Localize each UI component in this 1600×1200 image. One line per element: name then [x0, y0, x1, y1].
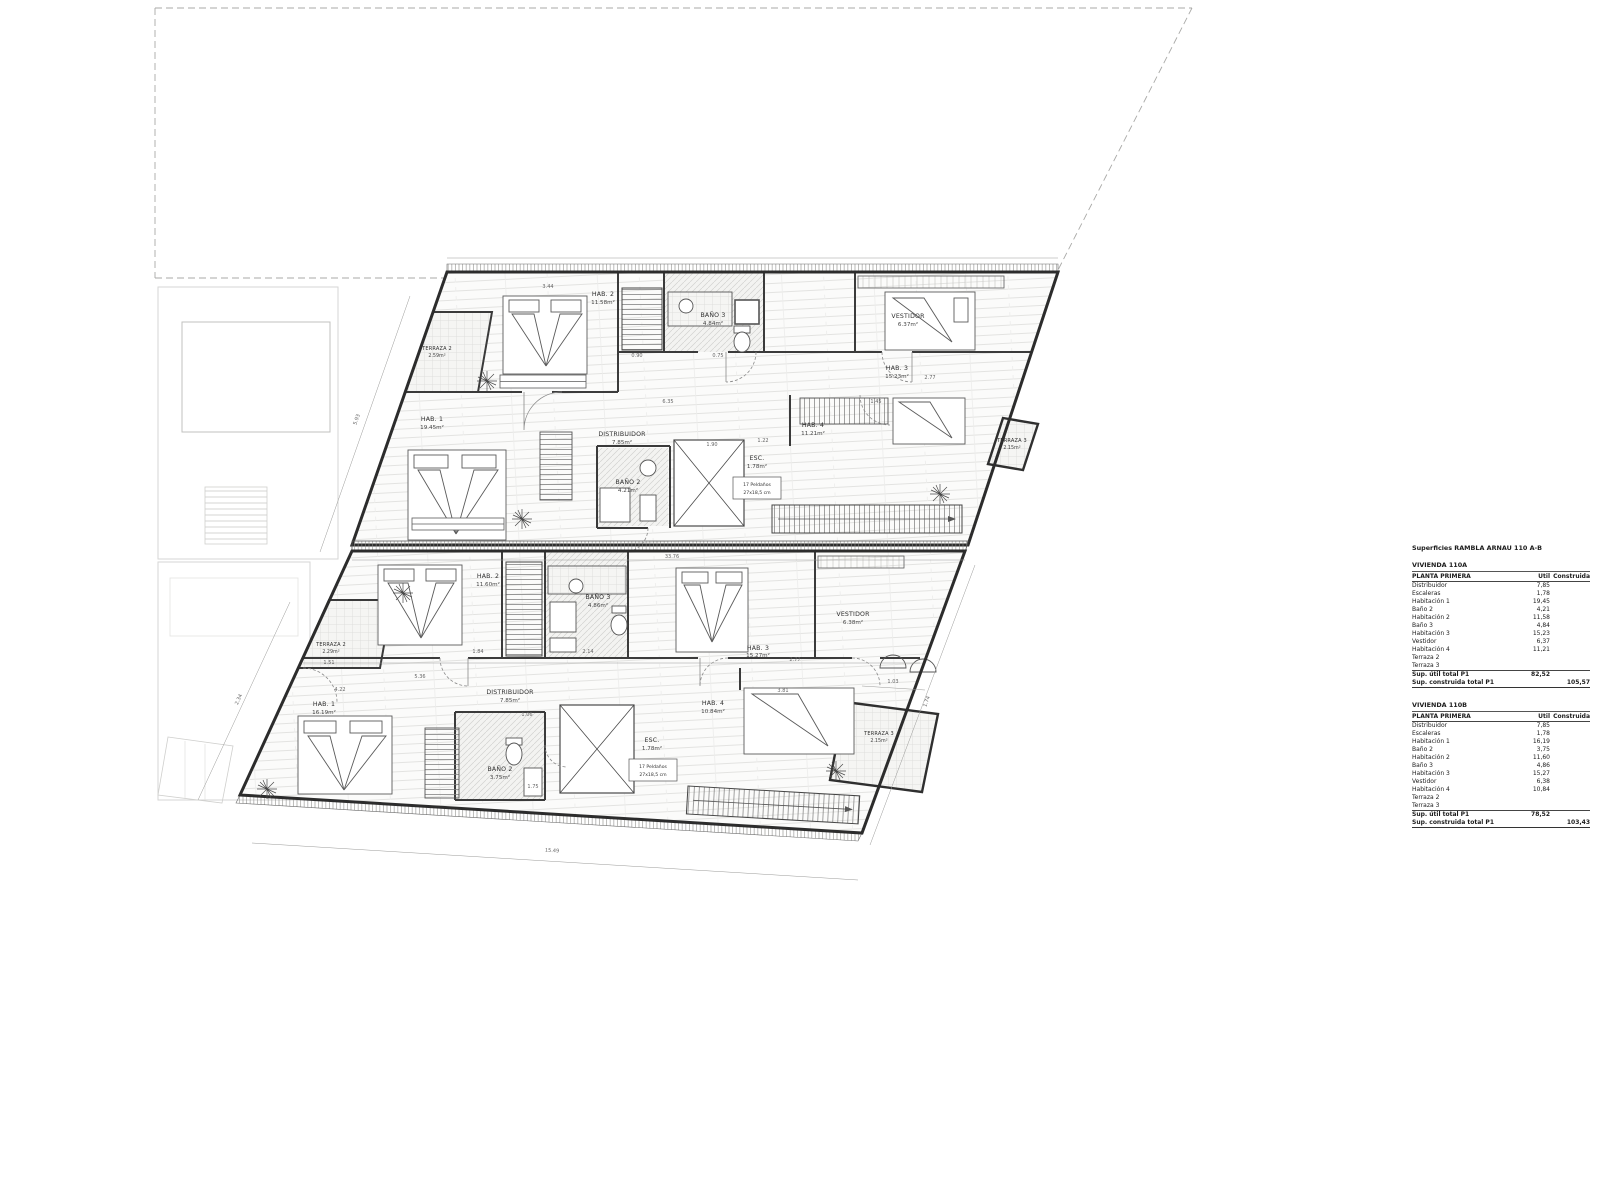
table-row: Vestidor 6,38 — [1412, 778, 1590, 786]
table-row: Vestidor 6,37 — [1412, 638, 1590, 646]
total-label: Sup. útil total P1 — [1412, 671, 1508, 680]
stair-note-line2: 27x18,5 cm — [743, 490, 771, 496]
table-row: Habitación 2 11,58 — [1412, 614, 1590, 622]
row-util: 7,85 — [1508, 722, 1550, 731]
room-area: 4.86m² — [588, 602, 608, 609]
unit-b: 17 Peldaños 27x18,5 cm TERRAZA 2 2.29m² … — [236, 551, 965, 841]
row-construida — [1550, 722, 1590, 731]
dim: 4.22 — [334, 687, 345, 693]
room-area: 16.19m² — [312, 709, 336, 716]
row-util — [1508, 794, 1550, 802]
room-label: BAÑO 2 — [615, 477, 640, 486]
unit-110a-table: VIVIENDA 110A PLANTA PRIMERA Útil Constr… — [1412, 561, 1590, 688]
row-util: 6,38 — [1508, 778, 1550, 786]
unit-110b-table: VIVIENDA 110B PLANTA PRIMERA Útil Constr… — [1412, 701, 1590, 828]
area-summary-table: Superficies RAMBLA ARNAU 110 A-B VIVIEND… — [1412, 544, 1590, 841]
table-row: Baño 2 4,21 — [1412, 606, 1590, 614]
table-row: Terraza 3 — [1412, 662, 1590, 671]
room-area: 1.78m² — [747, 463, 767, 470]
total-construida-row: Sup. construida total P1 103,43 — [1412, 819, 1590, 828]
dim: 5.36 — [414, 674, 425, 680]
room-area: 19.45m² — [420, 424, 444, 431]
room-area: 7.85m² — [612, 439, 632, 446]
dim: 1.45 — [870, 399, 881, 405]
room-label: HAB. 3 — [886, 365, 908, 372]
table-row: Habitación 1 16,19 — [1412, 738, 1590, 746]
total-label: Sup. construida total P1 — [1412, 819, 1508, 828]
total-util-row: Sup. útil total P1 78,52 — [1412, 811, 1590, 820]
total-label: Sup. útil total P1 — [1412, 811, 1508, 820]
row-label: Escaleras — [1412, 730, 1508, 738]
total-util-value: 82,52 — [1508, 671, 1550, 680]
unit-110a-heading: VIVIENDA 110A — [1412, 561, 1590, 572]
unit-110b-heading: VIVIENDA 110B — [1412, 701, 1590, 712]
row-util: 11,21 — [1508, 646, 1550, 654]
row-construida — [1550, 590, 1590, 598]
row-construida — [1550, 778, 1590, 786]
table-row: Habitación 4 11,21 — [1412, 646, 1590, 654]
row-label: Vestidor — [1412, 638, 1508, 646]
table-row: Habitación 4 10,84 — [1412, 786, 1590, 794]
room-area: 10.84m² — [701, 708, 725, 715]
room-label: HAB. 4 — [802, 422, 824, 429]
row-label: Habitación 1 — [1412, 598, 1508, 606]
row-construida — [1550, 630, 1590, 638]
row-label: Habitación 1 — [1412, 738, 1508, 746]
row-construida — [1550, 606, 1590, 614]
stair-note-line1: 17 Peldaños — [743, 482, 771, 488]
table-row: Distribuidor 7,85 — [1412, 722, 1590, 731]
row-label: Distribuidor — [1412, 582, 1508, 591]
table-header-row: PLANTA PRIMERA Útil Construida — [1412, 713, 1590, 722]
row-label: Baño 3 — [1412, 762, 1508, 770]
room-area: 11.60m² — [476, 581, 500, 588]
total-construida-row: Sup. construida total P1 105,57 — [1412, 679, 1590, 688]
row-label: Habitación 2 — [1412, 614, 1508, 622]
dim: 1.74 — [922, 695, 931, 708]
row-label: Baño 2 — [1412, 746, 1508, 754]
room-label: HAB. 2 — [592, 291, 614, 298]
room-label: TERRAZA 3 — [996, 438, 1027, 444]
dim: 6.35 — [662, 399, 673, 405]
row-construida — [1550, 746, 1590, 754]
dim: 33.76 — [665, 554, 679, 560]
dim: 1.51 — [323, 660, 334, 666]
table-row: Escaleras 1,78 — [1412, 590, 1590, 598]
table-title: Superficies RAMBLA ARNAU 110 A-B — [1412, 544, 1590, 552]
room-area: 6.37m² — [898, 321, 918, 328]
row-construida — [1550, 762, 1590, 770]
room-label: HAB. 2 — [477, 573, 499, 580]
row-label: Distribuidor — [1412, 722, 1508, 731]
total-util-value: 78,52 — [1508, 811, 1550, 820]
row-util: 7,85 — [1508, 582, 1550, 591]
room-area: 2.15m² — [870, 738, 887, 744]
dim: 0.90 — [631, 353, 642, 359]
row-construida — [1550, 662, 1590, 671]
row-label: Vestidor — [1412, 778, 1508, 786]
row-util: 4,86 — [1508, 762, 1550, 770]
row-construida — [1550, 754, 1590, 762]
room-area: 3.75m² — [490, 774, 510, 781]
dim: 2.77 — [789, 657, 800, 663]
dim: 1.75 — [527, 784, 538, 790]
col-construida: Construida — [1550, 713, 1590, 722]
dim: 0.75 — [712, 353, 723, 359]
col-construida: Construida — [1550, 573, 1590, 582]
unit-a: 17 Peldaños 27x18,5 cm TERRAZA 2 2.59m² … — [352, 264, 1058, 552]
row-util: 11,60 — [1508, 754, 1550, 762]
row-construida — [1550, 802, 1590, 811]
row-util: 6,37 — [1508, 638, 1550, 646]
row-label: Habitación 4 — [1412, 646, 1508, 654]
dim: 5.93 — [352, 413, 361, 426]
row-construida — [1550, 598, 1590, 606]
total-util-row: Sup. útil total P1 82,52 — [1412, 671, 1590, 680]
table-row: Terraza 2 — [1412, 654, 1590, 662]
stair-note-line1: 17 Peldaños — [639, 764, 667, 770]
room-label: DISTRIBUIDOR — [486, 689, 534, 696]
room-area: 15.23m² — [885, 373, 909, 380]
dim: 1.06 — [521, 712, 532, 718]
room-area: 1.78m² — [642, 745, 662, 752]
room-label: TERRAZA 3 — [863, 731, 894, 737]
row-label: Escaleras — [1412, 590, 1508, 598]
unit-b-stair-upper — [506, 562, 542, 656]
row-util: 19,45 — [1508, 598, 1550, 606]
unit-b-wardrobes — [818, 556, 904, 568]
room-label: BAÑO 3 — [700, 310, 725, 319]
dim: 15.49 — [545, 848, 560, 855]
row-construida — [1550, 654, 1590, 662]
dim: 1.90 — [706, 442, 717, 448]
room-label: TERRAZA 2 — [315, 642, 346, 648]
table-row: Habitación 3 15,23 — [1412, 630, 1590, 638]
room-area: 15.27m² — [746, 652, 770, 659]
row-construida — [1550, 770, 1590, 778]
table-row: Habitación 2 11,60 — [1412, 754, 1590, 762]
col-section: PLANTA PRIMERA — [1412, 573, 1508, 582]
col-util: Útil — [1508, 573, 1550, 582]
row-construida — [1550, 614, 1590, 622]
total-label: Sup. construida total P1 — [1412, 679, 1508, 688]
unit-b-shaft — [560, 705, 634, 793]
room-area: 11.58m² — [591, 299, 615, 306]
room-label: DISTRIBUIDOR — [598, 431, 646, 438]
row-label: Terraza 2 — [1412, 794, 1508, 802]
row-label: Habitación 2 — [1412, 754, 1508, 762]
unit-b-stair-small — [425, 728, 459, 798]
dim: 3.81 — [777, 688, 788, 694]
row-label: Baño 2 — [1412, 606, 1508, 614]
row-util: 4,84 — [1508, 622, 1550, 630]
room-area: 2.15m² — [1003, 445, 1020, 451]
room-area: 11.21m² — [801, 430, 825, 437]
table-row: Habitación 1 19,45 — [1412, 598, 1590, 606]
stair-note-line2: 27x18,5 cm — [639, 772, 667, 778]
table-row: Terraza 3 — [1412, 802, 1590, 811]
table-row: Baño 3 4,86 — [1412, 762, 1590, 770]
dim: 3.44 — [542, 284, 553, 290]
table-row: Baño 2 3,75 — [1412, 746, 1590, 754]
room-label: HAB. 4 — [702, 700, 724, 707]
dim: 2.77 — [924, 375, 935, 381]
row-util — [1508, 802, 1550, 811]
row-util: 1,78 — [1508, 730, 1550, 738]
room-area: 6.38m² — [843, 619, 863, 626]
row-label: Habitación 3 — [1412, 630, 1508, 638]
table-row: Baño 3 4,84 — [1412, 622, 1590, 630]
table-row: Distribuidor 7,85 — [1412, 582, 1590, 591]
row-util: 15,27 — [1508, 770, 1550, 778]
row-util — [1508, 662, 1550, 671]
table-row: Terraza 2 — [1412, 794, 1590, 802]
row-util — [1508, 654, 1550, 662]
room-area: 4.84m² — [703, 320, 723, 327]
room-label: BAÑO 3 — [585, 592, 610, 601]
row-util: 15,23 — [1508, 630, 1550, 638]
room-area: 2.59m² — [428, 353, 445, 359]
dim: 1.84 — [472, 649, 483, 655]
row-util: 4,21 — [1508, 606, 1550, 614]
row-construida — [1550, 730, 1590, 738]
dim: 1.03 — [887, 679, 898, 685]
row-label: Terraza 3 — [1412, 802, 1508, 811]
row-util: 10,84 — [1508, 786, 1550, 794]
unit-a-stair-upper — [622, 288, 662, 350]
room-label: BAÑO 2 — [487, 764, 512, 773]
room-label: VESTIDOR — [891, 313, 925, 320]
row-construida — [1550, 646, 1590, 654]
col-util: Útil — [1508, 713, 1550, 722]
table-header-row: PLANTA PRIMERA Útil Construida — [1412, 573, 1590, 582]
total-construida-value: 103,43 — [1550, 819, 1590, 828]
row-construida — [1550, 582, 1590, 591]
room-label: HAB. 1 — [421, 416, 443, 423]
room-area: 4.21m² — [618, 487, 638, 494]
row-construida — [1550, 738, 1590, 746]
table-row: Escaleras 1,78 — [1412, 730, 1590, 738]
room-label: HAB. 3 — [747, 645, 769, 652]
row-util: 16,19 — [1508, 738, 1550, 746]
room-label: ESC. — [645, 737, 660, 744]
unit-a-stair-note: 17 Peldaños 27x18,5 cm — [733, 477, 781, 499]
dim: 2.14 — [582, 649, 593, 655]
drawing-sheet: 17 Peldaños 27x18,5 cm TERRAZA 2 2.59m² … — [0, 0, 1600, 1200]
room-label: VESTIDOR — [836, 611, 870, 618]
row-construida — [1550, 794, 1590, 802]
room-area: 2.29m² — [322, 649, 339, 655]
row-util: 3,75 — [1508, 746, 1550, 754]
row-util: 1,78 — [1508, 590, 1550, 598]
room-area: 7.85m² — [500, 697, 520, 704]
row-construida — [1550, 786, 1590, 794]
row-util: 11,58 — [1508, 614, 1550, 622]
unit-b-stair-note: 17 Peldaños 27x18,5 cm — [629, 759, 677, 781]
row-label: Terraza 2 — [1412, 654, 1508, 662]
row-construida — [1550, 638, 1590, 646]
row-label: Baño 3 — [1412, 622, 1508, 630]
floor-plan-drawing: 17 Peldaños 27x18,5 cm TERRAZA 2 2.59m² … — [0, 0, 1600, 1200]
table-row: Habitación 3 15,27 — [1412, 770, 1590, 778]
room-label: HAB. 1 — [313, 701, 335, 708]
row-construida — [1550, 622, 1590, 630]
unit-a-stair-small — [540, 432, 572, 500]
row-label: Habitación 4 — [1412, 786, 1508, 794]
dim: 1.22 — [757, 438, 768, 444]
site-boundary-lines — [155, 8, 1192, 278]
row-label: Terraza 3 — [1412, 662, 1508, 671]
row-label: Habitación 3 — [1412, 770, 1508, 778]
room-label: ESC. — [750, 455, 765, 462]
total-construida-value: 105,57 — [1550, 679, 1590, 688]
room-label: TERRAZA 2 — [421, 346, 452, 352]
col-section: PLANTA PRIMERA — [1412, 713, 1508, 722]
